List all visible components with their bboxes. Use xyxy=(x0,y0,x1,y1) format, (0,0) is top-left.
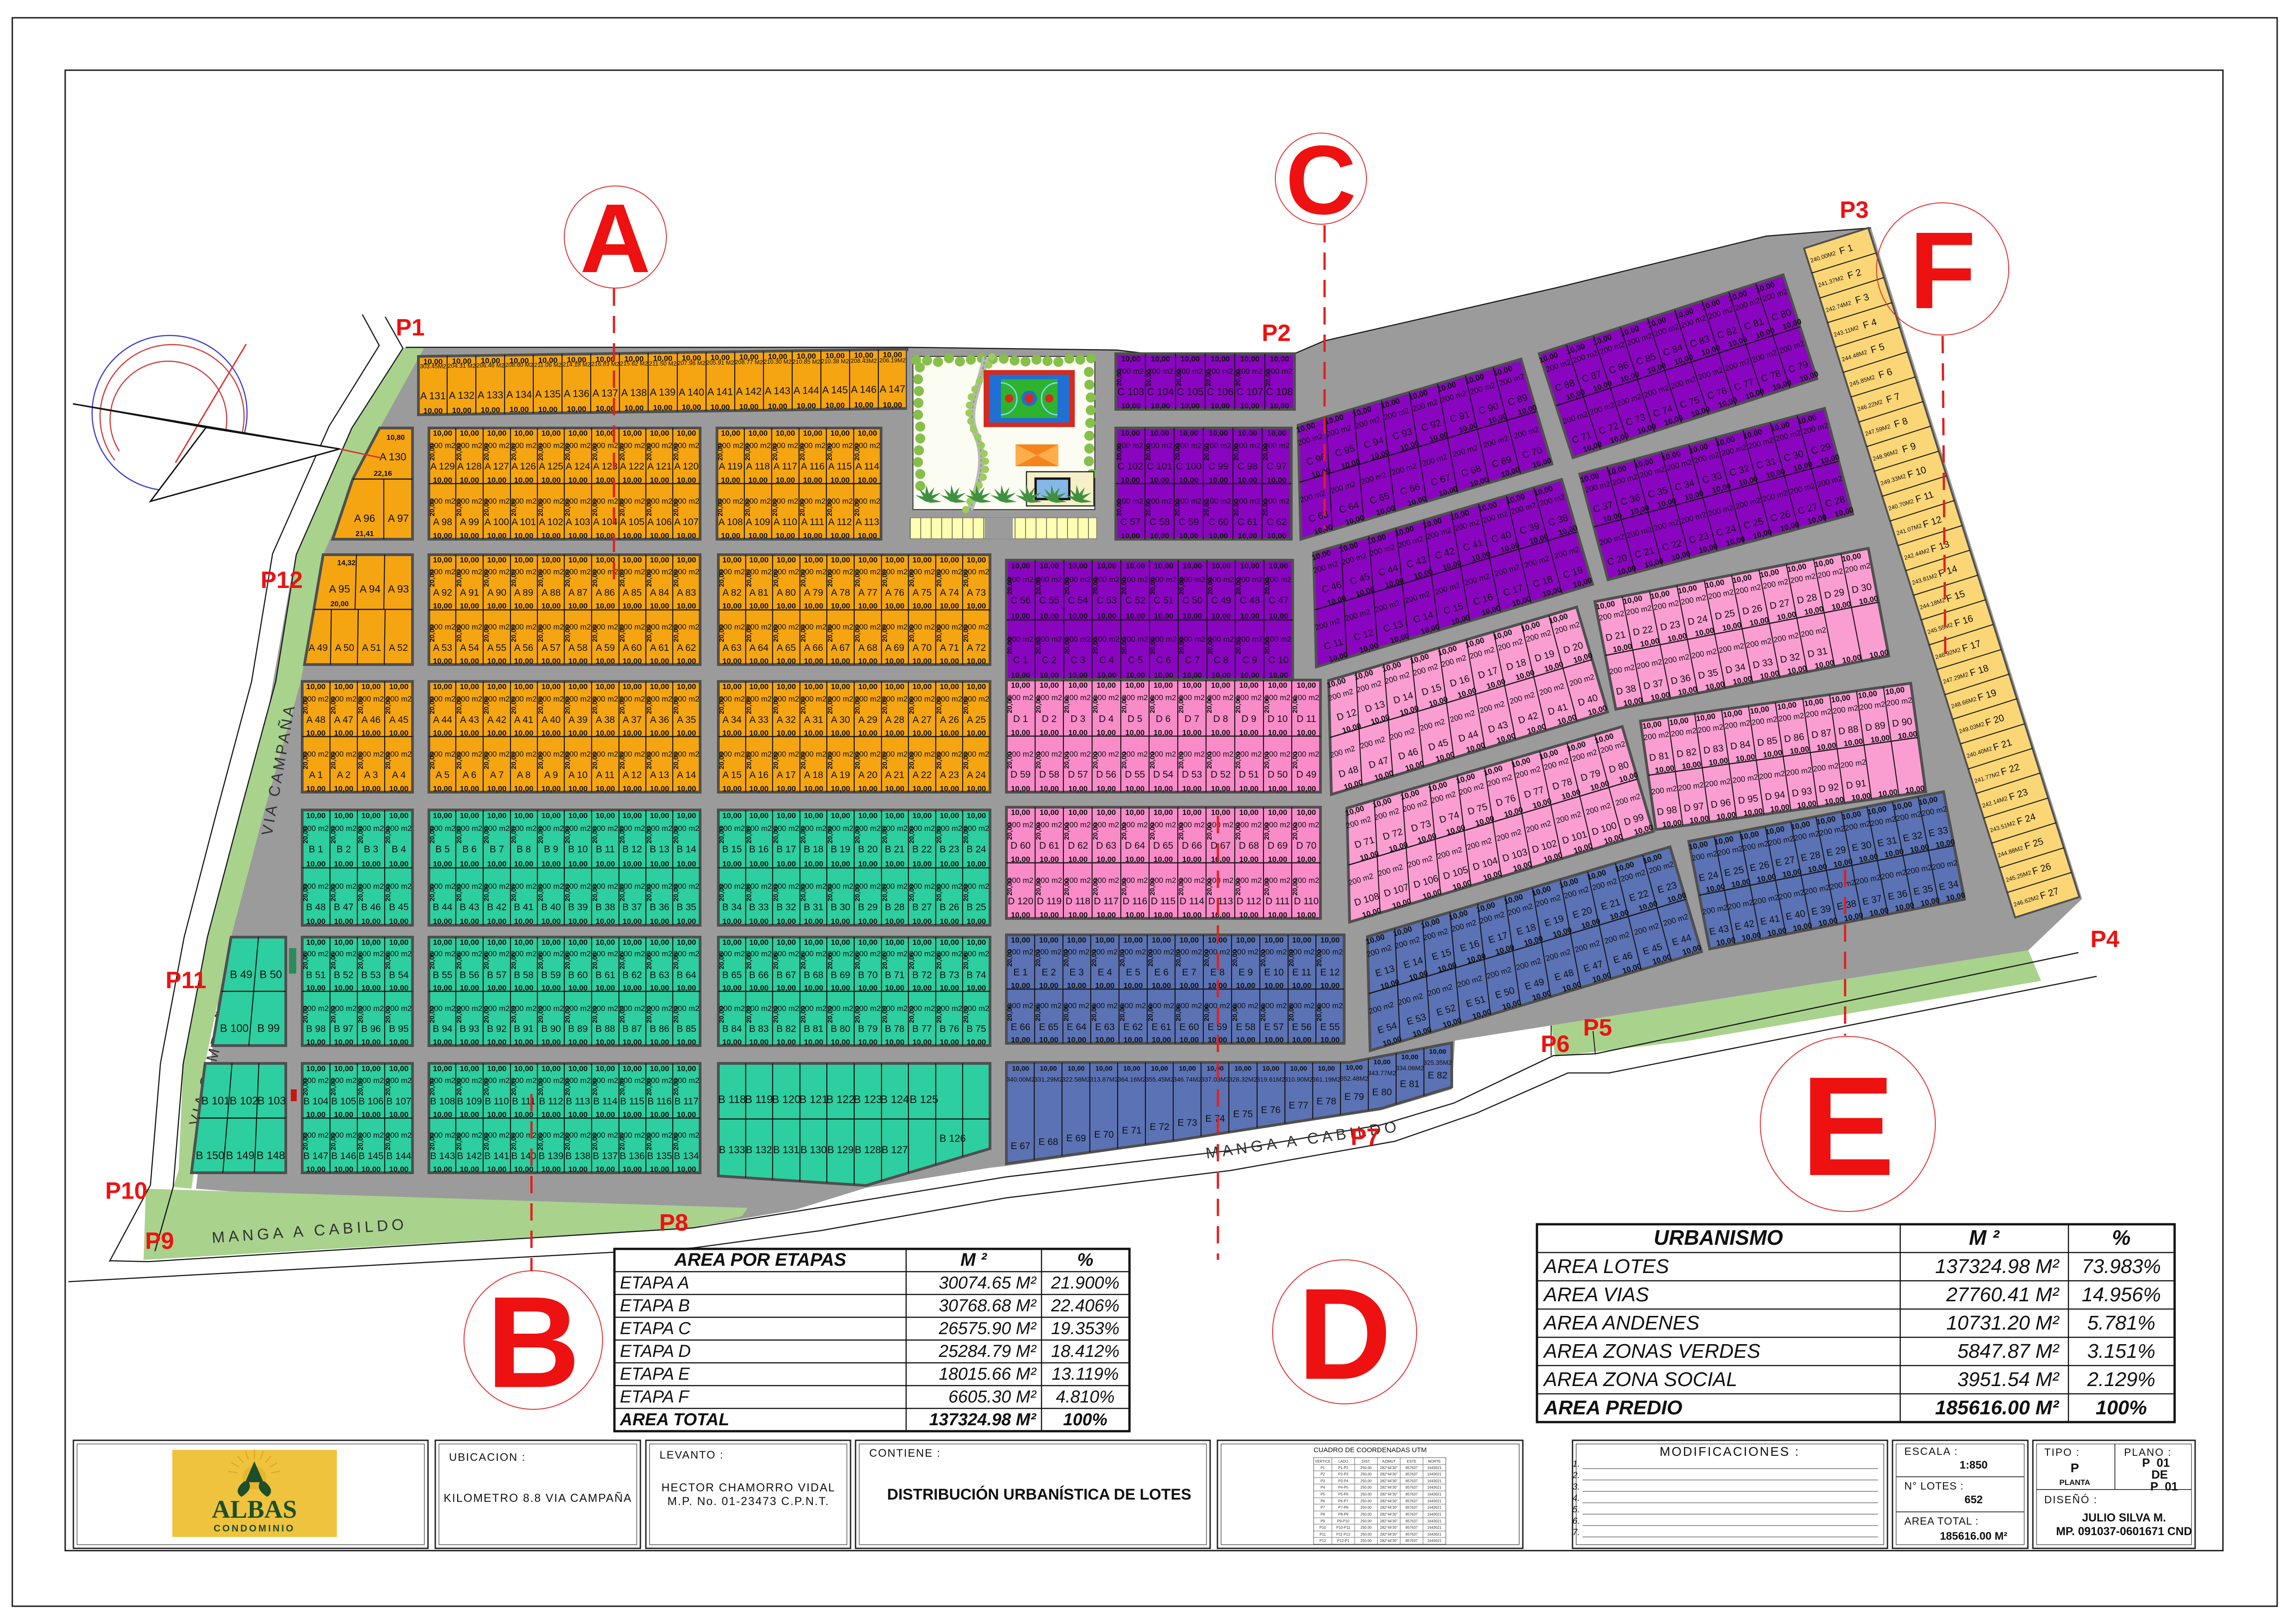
svg-text:10,00: 10,00 xyxy=(1124,1036,1143,1044)
svg-text:20,00: 20,00 xyxy=(302,1078,309,1096)
svg-text:10,00: 10,00 xyxy=(803,531,823,540)
svg-text:20,00: 20,00 xyxy=(881,625,889,642)
svg-text:A 25: A 25 xyxy=(967,715,986,725)
svg-text:A: A xyxy=(580,183,650,293)
svg-text:10,00: 10,00 xyxy=(830,429,850,438)
svg-text:20,00: 20,00 xyxy=(717,499,724,516)
svg-text:10,00: 10,00 xyxy=(487,784,507,793)
svg-text:E 63: E 63 xyxy=(1095,1022,1114,1032)
svg-text:20,00: 20,00 xyxy=(745,752,753,769)
svg-text:10,00: 10,00 xyxy=(777,811,796,820)
svg-text:20,00: 20,00 xyxy=(672,1078,680,1096)
svg-text:10,00: 10,00 xyxy=(797,402,816,410)
svg-text:C 2: C 2 xyxy=(1042,655,1057,665)
svg-text:B 134: B 134 xyxy=(674,1151,699,1161)
svg-text:20,00: 20,00 xyxy=(510,826,518,844)
svg-text:10,00: 10,00 xyxy=(1152,936,1171,944)
svg-text:B 106: B 106 xyxy=(359,1096,384,1107)
svg-text:B 79: B 79 xyxy=(858,1024,877,1034)
svg-text:CUADRO DE COORDENADAS UTM: CUADRO DE COORDENADAS UTM xyxy=(1314,1446,1427,1454)
svg-text:C: C xyxy=(1285,125,1356,235)
svg-text:B 91: B 91 xyxy=(514,1024,533,1034)
svg-text:A 119: A 119 xyxy=(719,461,742,472)
svg-text:20,00: 20,00 xyxy=(302,952,309,969)
svg-text:10,00: 10,00 xyxy=(777,682,796,691)
svg-text:20,00: 20,00 xyxy=(1145,369,1153,387)
svg-text:10,00: 10,00 xyxy=(967,984,986,992)
svg-text:10,00: 10,00 xyxy=(1292,1036,1312,1044)
svg-text:10,00: 10,00 xyxy=(940,657,959,665)
svg-text:10,00: 10,00 xyxy=(1040,1065,1057,1072)
svg-text:C 47: C 47 xyxy=(1268,595,1289,606)
svg-text:10,00: 10,00 xyxy=(722,657,742,665)
svg-text:10,00: 10,00 xyxy=(389,811,409,820)
svg-text:20,00: 20,00 xyxy=(302,1133,309,1150)
svg-text:B 148: B 148 xyxy=(257,1150,285,1162)
svg-text:10,00: 10,00 xyxy=(722,811,742,820)
svg-text:A 29: A 29 xyxy=(858,715,877,725)
svg-text:10,00: 10,00 xyxy=(749,917,769,926)
svg-text:10,00: 10,00 xyxy=(389,682,409,691)
svg-text:B 123: B 123 xyxy=(854,1093,882,1106)
svg-text:10,00: 10,00 xyxy=(306,784,326,793)
svg-text:C 51: C 51 xyxy=(1154,595,1174,606)
svg-text:A 11: A 11 xyxy=(596,770,614,780)
svg-text:20,00: 20,00 xyxy=(1006,823,1014,840)
svg-text:B 86: B 86 xyxy=(650,1024,669,1034)
svg-text:%: % xyxy=(1077,1250,1093,1270)
svg-text:20,00: 20,00 xyxy=(510,1078,518,1096)
svg-text:A 48: A 48 xyxy=(306,715,325,725)
svg-text:P3: P3 xyxy=(1840,197,1869,223)
svg-text:250.00: 250.00 xyxy=(1361,1519,1372,1523)
svg-text:10,00: 10,00 xyxy=(1209,476,1228,485)
svg-text:10,00: 10,00 xyxy=(1320,936,1340,944)
svg-text:10,00: 10,00 xyxy=(1097,784,1116,793)
svg-text:C 1: C 1 xyxy=(1013,655,1028,665)
svg-text:10,00: 10,00 xyxy=(913,1038,932,1047)
svg-text:20,00: 20,00 xyxy=(384,826,392,844)
svg-text:10,00: 10,00 xyxy=(858,531,877,540)
svg-text:10,00: 10,00 xyxy=(596,1038,615,1047)
svg-text:346.74M2: 346.74M2 xyxy=(1173,1076,1201,1083)
svg-text:10,00: 10,00 xyxy=(514,556,534,564)
svg-text:20,00: 20,00 xyxy=(935,826,943,844)
svg-text:P8: P8 xyxy=(659,1210,688,1236)
svg-text:B 32: B 32 xyxy=(776,902,796,913)
svg-text:20,00: 20,00 xyxy=(1062,1004,1070,1021)
svg-text:DISEÑÓ :: DISEÑÓ : xyxy=(2044,1494,2098,1505)
svg-text:10,00: 10,00 xyxy=(776,429,795,438)
svg-text:B 117: B 117 xyxy=(674,1096,698,1107)
svg-text:10,00: 10,00 xyxy=(334,1110,354,1119)
svg-text:ETAPA C: ETAPA C xyxy=(620,1319,691,1338)
svg-text:F: F xyxy=(1909,209,1976,331)
svg-text:E 68: E 68 xyxy=(1038,1137,1058,1147)
svg-text:20,00: 20,00 xyxy=(1263,752,1271,769)
svg-text:D 68: D 68 xyxy=(1239,840,1259,851)
svg-text:B 101: B 101 xyxy=(201,1095,230,1107)
svg-text:10,00: 10,00 xyxy=(596,476,615,485)
svg-text:20,00: 20,00 xyxy=(428,752,436,769)
svg-text:10,00: 10,00 xyxy=(487,657,507,665)
svg-text:10,00: 10,00 xyxy=(1011,784,1031,793)
svg-text:10,00: 10,00 xyxy=(1240,355,1260,363)
svg-text:10,00: 10,00 xyxy=(487,1064,507,1073)
svg-text:250.00: 250.00 xyxy=(1361,1472,1372,1476)
svg-text:10,00: 10,00 xyxy=(460,1110,480,1119)
svg-text:21.900%: 21.900% xyxy=(1051,1273,1119,1293)
svg-text:B 10: B 10 xyxy=(568,844,588,855)
svg-text:10,00: 10,00 xyxy=(1011,612,1031,620)
svg-text:10,00: 10,00 xyxy=(334,938,354,947)
svg-text:20,00: 20,00 xyxy=(384,952,392,969)
svg-text:10,00: 10,00 xyxy=(1154,808,1173,817)
svg-text:E 69: E 69 xyxy=(1066,1133,1086,1144)
svg-text:20,00: 20,00 xyxy=(1006,878,1014,896)
svg-text:C 56: C 56 xyxy=(1011,595,1031,606)
svg-text:A 144: A 144 xyxy=(794,385,819,396)
svg-text:10,00: 10,00 xyxy=(306,1064,326,1073)
svg-text:D 115: D 115 xyxy=(1151,896,1176,907)
svg-text:10,00: 10,00 xyxy=(433,476,453,485)
svg-text:10,00: 10,00 xyxy=(776,476,795,485)
svg-text:20,00: 20,00 xyxy=(1177,696,1185,713)
svg-text:D 67: D 67 xyxy=(1211,840,1231,851)
svg-text:20,00: 20,00 xyxy=(330,884,337,902)
svg-text:10,00: 10,00 xyxy=(677,1165,696,1174)
svg-text:B 125: B 125 xyxy=(910,1093,938,1106)
svg-text:10,00: 10,00 xyxy=(858,984,878,992)
svg-text:A 87: A 87 xyxy=(568,588,588,598)
svg-text:M ²: M ² xyxy=(960,1250,987,1270)
svg-text:22,16: 22,16 xyxy=(374,470,392,478)
svg-text:10,00: 10,00 xyxy=(514,682,534,691)
svg-text:10,00: 10,00 xyxy=(885,938,905,947)
svg-text:A 62: A 62 xyxy=(677,643,696,653)
svg-text:P2: P2 xyxy=(1320,1472,1325,1476)
svg-text:10,00: 10,00 xyxy=(389,1064,409,1073)
svg-text:%: % xyxy=(2112,1226,2131,1249)
svg-text:B 51: B 51 xyxy=(306,970,325,980)
svg-text:20,00: 20,00 xyxy=(1115,369,1123,387)
svg-text:C 60: C 60 xyxy=(1208,517,1228,527)
svg-text:10,00: 10,00 xyxy=(749,657,769,665)
svg-text:20,00: 20,00 xyxy=(935,697,943,714)
svg-text:10,00: 10,00 xyxy=(334,811,354,820)
svg-text:10,00: 10,00 xyxy=(677,657,696,665)
svg-text:27760.41 M²: 27760.41 M² xyxy=(1946,1284,2059,1306)
svg-text:P10: P10 xyxy=(105,1178,148,1204)
svg-text:10,00: 10,00 xyxy=(858,938,878,947)
svg-text:282°44'30": 282°44'30" xyxy=(1380,1526,1398,1530)
svg-text:10,00: 10,00 xyxy=(541,1038,561,1047)
svg-text:A 76: A 76 xyxy=(885,588,904,598)
svg-text:B 58: B 58 xyxy=(514,970,533,980)
svg-text:A 102: A 102 xyxy=(539,517,563,527)
svg-text:282°44'30": 282°44'30" xyxy=(1380,1479,1398,1483)
svg-text:857637: 857637 xyxy=(1406,1485,1418,1490)
svg-text:B 109: B 109 xyxy=(457,1096,482,1107)
svg-text:P11: P11 xyxy=(1320,1532,1326,1536)
svg-text:20,00: 20,00 xyxy=(357,1006,365,1023)
svg-text:C 107: C 107 xyxy=(1237,386,1263,397)
svg-text:20,00: 20,00 xyxy=(455,499,463,516)
svg-text:10,00: 10,00 xyxy=(487,938,507,947)
svg-text:20,00: 20,00 xyxy=(908,952,916,969)
svg-text:D 54: D 54 xyxy=(1153,769,1174,780)
svg-text:20,00: 20,00 xyxy=(1291,878,1299,896)
svg-text:20,00: 20,00 xyxy=(1235,577,1243,595)
svg-text:20,00: 20,00 xyxy=(510,697,518,714)
svg-text:10,00: 10,00 xyxy=(831,1038,851,1047)
svg-text:10,00: 10,00 xyxy=(885,682,905,691)
svg-text:10,00: 10,00 xyxy=(1011,936,1031,944)
svg-text:3951.54 M²: 3951.54 M² xyxy=(1957,1368,2059,1391)
svg-text:20,00: 20,00 xyxy=(645,884,653,902)
svg-text:10,00: 10,00 xyxy=(1267,429,1287,438)
svg-text:25284.79 M²: 25284.79 M² xyxy=(938,1342,1037,1361)
svg-text:20,00: 20,00 xyxy=(591,625,599,642)
svg-text:D 111: D 111 xyxy=(1266,896,1290,907)
svg-text:10,00: 10,00 xyxy=(568,1064,588,1073)
svg-text:A 38: A 38 xyxy=(596,715,615,725)
svg-text:B 55: B 55 xyxy=(433,970,452,980)
svg-text:A 111: A 111 xyxy=(801,517,825,527)
svg-text:10,00: 10,00 xyxy=(1097,562,1117,570)
svg-text:10,00: 10,00 xyxy=(940,1038,959,1047)
svg-text:10,00: 10,00 xyxy=(777,729,796,737)
svg-text:10,00: 10,00 xyxy=(334,682,354,691)
svg-text:D 114: D 114 xyxy=(1180,896,1205,907)
svg-text:337.03M2: 337.03M2 xyxy=(1201,1076,1229,1083)
svg-text:20,00: 20,00 xyxy=(591,443,599,461)
svg-text:20,00: 20,00 xyxy=(826,697,834,714)
svg-text:CONTIENE :: CONTIENE : xyxy=(869,1447,941,1459)
svg-text:D 50: D 50 xyxy=(1268,769,1288,780)
svg-text:D 55: D 55 xyxy=(1125,769,1145,780)
svg-text:E 60: E 60 xyxy=(1179,1022,1199,1032)
svg-text:10,00: 10,00 xyxy=(596,429,615,438)
svg-text:MP. 091037-0601671 CND: MP. 091037-0601671 CND xyxy=(2056,1525,2192,1538)
svg-text:20,00: 20,00 xyxy=(483,570,490,587)
svg-text:AREA ZONAS VERDES: AREA ZONAS VERDES xyxy=(1542,1340,1760,1362)
svg-text:10,00: 10,00 xyxy=(1179,1065,1196,1072)
svg-text:B 73: B 73 xyxy=(939,970,959,980)
svg-text:10,00: 10,00 xyxy=(831,938,851,947)
svg-text:10,00: 10,00 xyxy=(749,938,769,947)
svg-text:20,00: 20,00 xyxy=(455,1133,463,1150)
svg-text:20,00: 20,00 xyxy=(718,952,726,969)
svg-text:10,00: 10,00 xyxy=(1267,476,1287,485)
svg-text:334.06M2: 334.06M2 xyxy=(1396,1064,1424,1072)
svg-text:10,00: 10,00 xyxy=(514,531,534,540)
svg-text:10,00: 10,00 xyxy=(831,917,851,926)
svg-text:10,00: 10,00 xyxy=(722,917,742,926)
svg-text:10,00: 10,00 xyxy=(568,860,588,868)
svg-text:A 107: A 107 xyxy=(674,517,699,527)
svg-text:10,00: 10,00 xyxy=(623,917,642,926)
svg-text:250.00: 250.00 xyxy=(1361,1526,1372,1530)
svg-text:20,00: 20,00 xyxy=(1315,1004,1323,1021)
svg-text:20,00: 20,00 xyxy=(1291,752,1299,769)
svg-text:10,00: 10,00 xyxy=(677,602,696,610)
svg-text:10,00: 10,00 xyxy=(677,729,696,737)
svg-text:325.35M2: 325.35M2 xyxy=(1423,1059,1452,1066)
svg-text:10,00: 10,00 xyxy=(940,784,959,793)
svg-text:10,00: 10,00 xyxy=(514,1165,534,1174)
svg-text:10,00: 10,00 xyxy=(1012,1065,1029,1072)
svg-text:10,00: 10,00 xyxy=(858,860,878,868)
svg-text:10,00: 10,00 xyxy=(1268,784,1288,793)
svg-text:C 100: C 100 xyxy=(1176,461,1201,472)
svg-text:A 13: A 13 xyxy=(650,770,669,780)
svg-text:B 137: B 137 xyxy=(593,1151,618,1161)
svg-text:A 65: A 65 xyxy=(777,643,796,653)
svg-text:A 8: A 8 xyxy=(517,770,531,780)
svg-text:20,00: 20,00 xyxy=(799,884,807,902)
svg-text:10,00: 10,00 xyxy=(803,476,823,485)
svg-text:20,00: 20,00 xyxy=(1263,577,1271,595)
svg-text:20,00: 20,00 xyxy=(745,826,753,844)
svg-text:10,00: 10,00 xyxy=(1182,808,1202,817)
svg-text:20,00: 20,00 xyxy=(1035,696,1042,713)
svg-text:B 36: B 36 xyxy=(650,902,669,913)
svg-text:B 116: B 116 xyxy=(647,1096,671,1107)
svg-text:10,00: 10,00 xyxy=(1095,1036,1115,1044)
svg-text:A 106: A 106 xyxy=(647,517,672,527)
svg-text:E 1: E 1 xyxy=(1013,967,1028,978)
svg-text:20,00: 20,00 xyxy=(1288,949,1295,967)
svg-text:20,00: 20,00 xyxy=(962,752,970,769)
svg-text:10,00: 10,00 xyxy=(389,860,409,868)
svg-text:20,00: 20,00 xyxy=(1235,637,1243,655)
svg-text:20,00: 20,00 xyxy=(428,570,436,587)
svg-text:20,00: 20,00 xyxy=(428,499,436,516)
svg-text:20,00: 20,00 xyxy=(908,1006,916,1023)
svg-text:20,00: 20,00 xyxy=(564,884,572,902)
svg-text:10,00: 10,00 xyxy=(1240,671,1260,680)
svg-text:20,00: 20,00 xyxy=(1120,577,1128,595)
svg-text:20,00: 20,00 xyxy=(1092,696,1099,713)
svg-text:10,00: 10,00 xyxy=(858,657,878,665)
svg-text:10,00: 10,00 xyxy=(1268,681,1288,690)
svg-text:5.781%: 5.781% xyxy=(2087,1312,2155,1334)
svg-text:A 145: A 145 xyxy=(822,384,848,396)
svg-text:20,00: 20,00 xyxy=(881,884,889,902)
svg-text:10,00: 10,00 xyxy=(568,917,588,926)
svg-text:A 109: A 109 xyxy=(746,517,770,527)
svg-text:20,00: 20,00 xyxy=(718,884,726,902)
svg-text:10,00: 10,00 xyxy=(361,811,381,820)
svg-text:A 124: A 124 xyxy=(566,461,590,472)
svg-text:20,00: 20,00 xyxy=(1149,696,1156,713)
svg-text:10,00: 10,00 xyxy=(1239,681,1259,690)
svg-text:10,00: 10,00 xyxy=(804,917,824,926)
svg-text:10,00: 10,00 xyxy=(361,860,381,868)
svg-text:10,00: 10,00 xyxy=(1068,911,1088,919)
svg-text:20,00: 20,00 xyxy=(1120,637,1128,655)
svg-text:B 31: B 31 xyxy=(804,902,823,913)
svg-text:B 70: B 70 xyxy=(858,970,877,980)
svg-text:20,00: 20,00 xyxy=(672,697,680,714)
svg-text:20,00: 20,00 xyxy=(537,443,545,461)
svg-text:B 139: B 139 xyxy=(539,1151,564,1161)
svg-text:10,00: 10,00 xyxy=(1011,671,1031,680)
svg-text:282°44'30": 282°44'30" xyxy=(1380,1499,1398,1503)
svg-text:20,00: 20,00 xyxy=(1232,499,1240,516)
svg-text:B 27: B 27 xyxy=(912,902,932,913)
svg-text:10,00: 10,00 xyxy=(433,429,453,438)
svg-text:10,00: 10,00 xyxy=(623,784,642,793)
svg-text:10,00: 10,00 xyxy=(1264,936,1284,944)
svg-text:A 136: A 136 xyxy=(564,388,589,399)
svg-text:10,00: 10,00 xyxy=(777,917,796,926)
svg-text:20,00: 20,00 xyxy=(772,826,780,844)
svg-text:10,00: 10,00 xyxy=(541,429,561,438)
svg-text:B 13: B 13 xyxy=(650,844,669,855)
svg-text:10,00: 10,00 xyxy=(1236,936,1256,944)
svg-text:10,00: 10,00 xyxy=(1297,808,1316,817)
svg-text:20,00: 20,00 xyxy=(1115,499,1123,516)
svg-text:P4: P4 xyxy=(1320,1485,1325,1490)
svg-text:A 89: A 89 xyxy=(514,588,533,598)
svg-text:10,00: 10,00 xyxy=(885,1038,905,1047)
svg-text:E 71: E 71 xyxy=(1122,1125,1141,1136)
svg-text:A 117: A 117 xyxy=(773,461,797,472)
svg-text:20,00: 20,00 xyxy=(1120,752,1128,769)
svg-text:20,00: 20,00 xyxy=(428,952,436,969)
svg-text:20,00: 20,00 xyxy=(881,697,889,714)
svg-text:10,00: 10,00 xyxy=(1183,671,1202,680)
svg-text:A 139: A 139 xyxy=(650,387,675,398)
svg-text:20,00: 20,00 xyxy=(772,952,780,969)
svg-text:A 126: A 126 xyxy=(511,461,536,472)
svg-text:20,00: 20,00 xyxy=(1149,878,1156,896)
svg-text:E 77: E 77 xyxy=(1289,1100,1308,1111)
svg-text:322.58M2: 322.58M2 xyxy=(1062,1076,1090,1083)
svg-text:20,00: 20,00 xyxy=(564,752,572,769)
svg-text:20,00: 20,00 xyxy=(1035,823,1042,840)
svg-text:857637: 857637 xyxy=(1406,1539,1418,1543)
svg-text:B 122: B 122 xyxy=(826,1093,855,1106)
svg-text:10,00: 10,00 xyxy=(1212,562,1231,570)
svg-text:B 131: B 131 xyxy=(773,1144,799,1155)
svg-text:20,00: 20,00 xyxy=(772,884,780,902)
svg-text:A 141: A 141 xyxy=(707,386,733,397)
svg-text:A 101: A 101 xyxy=(511,517,536,527)
svg-text:10,00: 10,00 xyxy=(306,984,326,992)
svg-text:208.43M2: 208.43M2 xyxy=(851,357,877,364)
svg-text:1643021: 1643021 xyxy=(1427,1466,1442,1470)
svg-text:E 4: E 4 xyxy=(1098,967,1112,978)
svg-text:10,00: 10,00 xyxy=(804,602,824,610)
svg-text:E 55: E 55 xyxy=(1320,1022,1340,1032)
svg-text:D 65: D 65 xyxy=(1153,840,1173,851)
svg-text:A 20: A 20 xyxy=(858,770,877,780)
svg-text:10,00: 10,00 xyxy=(1269,562,1289,570)
svg-text:B 124: B 124 xyxy=(881,1093,909,1106)
svg-text:10,00: 10,00 xyxy=(389,917,409,926)
svg-text:10,00: 10,00 xyxy=(514,1110,534,1119)
svg-text:20,00: 20,00 xyxy=(384,884,392,902)
svg-text:10,00: 10,00 xyxy=(568,784,588,793)
svg-text:20,00: 20,00 xyxy=(826,443,834,461)
svg-text:20,00: 20,00 xyxy=(672,570,680,587)
svg-text:10,00: 10,00 xyxy=(1097,855,1116,864)
svg-text:7.: 7. xyxy=(1573,1528,1580,1537)
svg-text:10,00: 10,00 xyxy=(389,1110,409,1119)
